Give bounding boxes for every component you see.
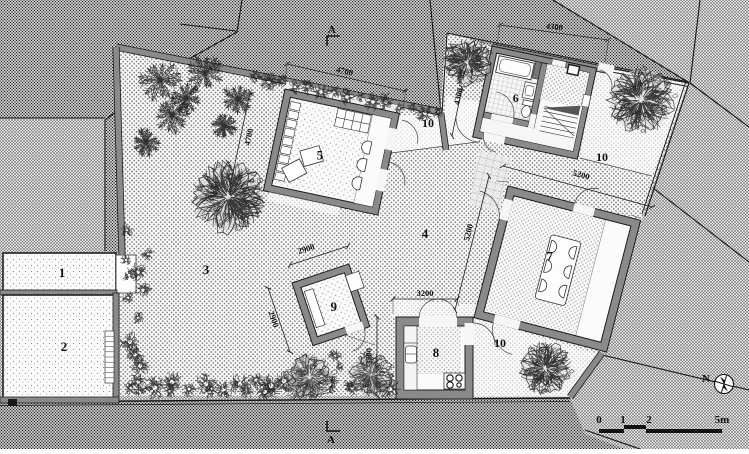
svg-text:1: 1 xyxy=(620,414,626,426)
svg-text:A: A xyxy=(327,434,335,446)
svg-text:7: 7 xyxy=(546,249,553,264)
svg-text:2: 2 xyxy=(61,339,68,354)
svg-text:5: 5 xyxy=(317,148,324,163)
svg-text:3200: 3200 xyxy=(364,348,374,365)
svg-text:3200: 3200 xyxy=(417,288,434,298)
svg-text:N: N xyxy=(702,373,710,385)
svg-text:10: 10 xyxy=(422,116,434,130)
svg-text:A: A xyxy=(328,24,336,36)
svg-text:10: 10 xyxy=(494,336,506,350)
svg-text:10: 10 xyxy=(596,150,608,164)
svg-text:2: 2 xyxy=(646,414,652,426)
svg-text:4: 4 xyxy=(422,226,429,241)
svg-text:5m: 5m xyxy=(715,414,730,426)
svg-text:0: 0 xyxy=(596,414,602,426)
svg-text:1: 1 xyxy=(59,265,66,280)
svg-text:9: 9 xyxy=(331,299,338,314)
svg-text:6: 6 xyxy=(513,91,519,105)
svg-text:3: 3 xyxy=(203,262,210,277)
svg-text:8: 8 xyxy=(433,345,440,360)
